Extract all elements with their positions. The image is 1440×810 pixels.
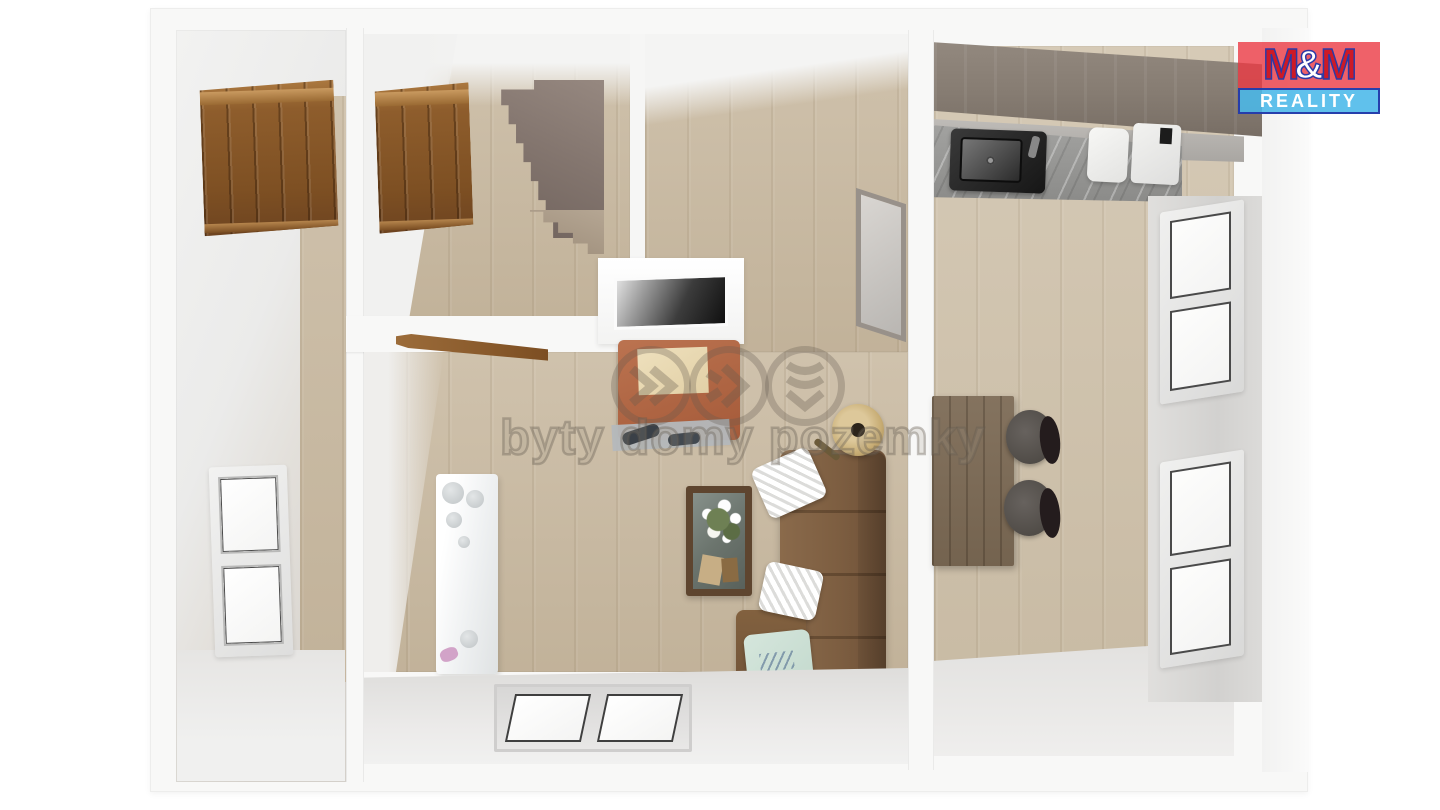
radiator bbox=[436, 474, 498, 674]
radiator-knob bbox=[460, 630, 478, 648]
floorplan-render: byty domy pozemky M & M REALITY bbox=[0, 0, 1440, 810]
wall-divider bbox=[908, 30, 934, 770]
glass-partition bbox=[856, 188, 906, 342]
window-pane bbox=[1170, 301, 1230, 391]
window-right-wall-top bbox=[1160, 199, 1244, 404]
radiator-knob bbox=[466, 490, 484, 508]
sofa-backrest bbox=[858, 452, 886, 706]
mm-reality-logo: M & M REALITY bbox=[1238, 42, 1380, 114]
window-right-wall-bottom bbox=[1160, 449, 1244, 668]
radiator-knob bbox=[446, 512, 462, 528]
flower-bouquet bbox=[698, 498, 746, 552]
wardrobe-stair-room bbox=[374, 82, 473, 233]
appliance-detail bbox=[1160, 128, 1173, 145]
window-left-wall bbox=[209, 465, 294, 658]
pillow-pattern bbox=[759, 650, 795, 671]
outer-wall-right bbox=[1262, 28, 1308, 772]
window-pane bbox=[597, 694, 683, 742]
dining-table bbox=[932, 396, 1014, 566]
fireplace-opening bbox=[614, 274, 728, 330]
radiator-valve bbox=[438, 645, 460, 664]
window-pane bbox=[505, 694, 591, 742]
wall-divider bbox=[346, 28, 364, 782]
wall-face bbox=[645, 34, 908, 164]
window-pane bbox=[221, 564, 285, 646]
sink-drain bbox=[986, 156, 995, 165]
book bbox=[721, 557, 739, 582]
radiator-knob bbox=[442, 482, 464, 504]
wall-divider bbox=[630, 34, 645, 264]
armchair-cushion bbox=[637, 347, 709, 395]
window-pane bbox=[1170, 559, 1230, 655]
window-pane bbox=[1170, 211, 1230, 299]
logo-letter-m: M bbox=[1263, 43, 1298, 87]
window-pane bbox=[1170, 462, 1230, 556]
floor-lamp-shade-center bbox=[851, 423, 865, 437]
kitchen-appliance bbox=[1130, 123, 1181, 185]
logo-mm-box: M & M bbox=[1238, 42, 1380, 88]
radiator-knob bbox=[458, 536, 470, 548]
logo-letter-m: M bbox=[1320, 43, 1355, 87]
logo-reality-box: REALITY bbox=[1238, 88, 1380, 114]
wardrobe-left-room bbox=[199, 80, 338, 237]
logo-ampersand: & bbox=[1295, 45, 1324, 85]
bedroom-floor-shadow bbox=[177, 650, 345, 781]
kitchen-appliance bbox=[1087, 127, 1130, 183]
window-pane bbox=[218, 474, 282, 554]
